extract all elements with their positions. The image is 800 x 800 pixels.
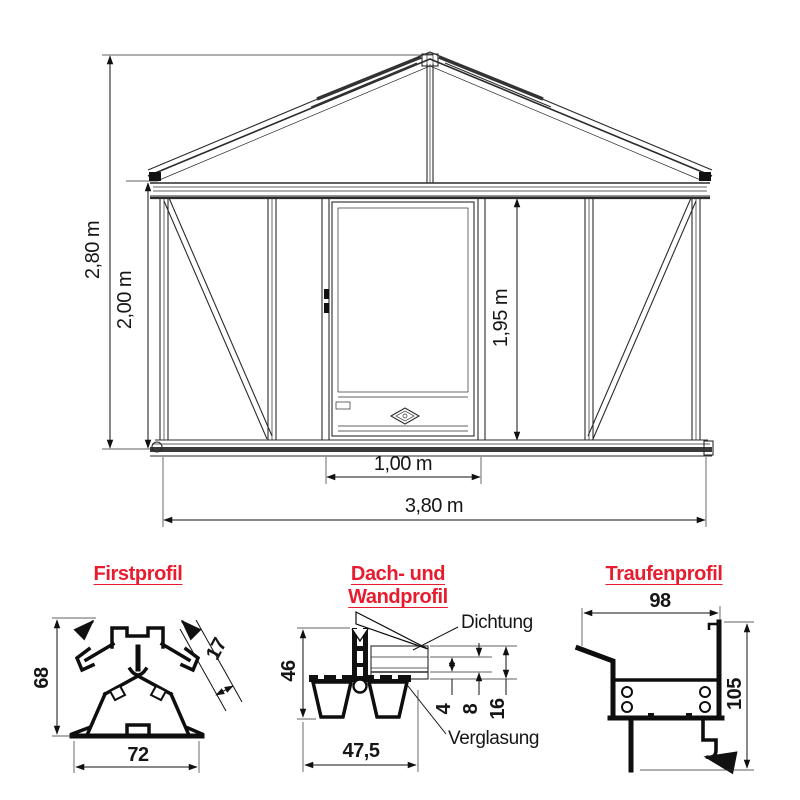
door: [324, 202, 474, 436]
dim-first-width-label: 72: [127, 744, 149, 766]
dim-door-height-label: 1,95 m: [490, 289, 512, 347]
dim-glass-label: 4: [433, 702, 455, 714]
diagonal-braces: [164, 198, 696, 439]
glazing-panel: [371, 646, 428, 679]
dim-total-width-label: 3,80 m: [405, 495, 463, 517]
glazing-callout-label: Verglasung: [448, 728, 539, 749]
greenhouse-elevation: [148, 52, 713, 456]
dim-gap-label: 8: [460, 703, 482, 714]
dim-wall-height-label: 2,00 m: [114, 271, 136, 329]
dachwand-drawing: 46 47,5 4 8 16 Dichtung Verglasung: [278, 612, 539, 772]
dim-traufen-width-label: 98: [649, 590, 671, 612]
firstprofil-title: Firstprofil: [63, 563, 213, 587]
drawing-art: 2,80 m 2,00 m 1,95 m 1,00 m 3,80 m: [0, 0, 800, 800]
dim-traufen-height-label: 105: [724, 678, 746, 710]
wall-posts: [160, 198, 700, 440]
traufen-title: Traufenprofil: [588, 563, 740, 587]
dim-dachwand-height-label: 46: [278, 660, 300, 682]
dim-dachwand-width-label: 47,5: [343, 740, 380, 762]
dim-total-label: 16: [487, 698, 509, 720]
firstprofil-drawing: 68 72 17: [31, 618, 242, 773]
dim-first-height-label: 68: [31, 667, 53, 689]
technical-drawing-page: 2,80 m 2,00 m 1,95 m 1,00 m 3,80 m: [0, 0, 800, 800]
brand-diamond-emblem: [391, 408, 419, 424]
dim-door-width-label: 1,00 m: [374, 453, 432, 475]
dim-total-height-label: 2,80 m: [82, 221, 104, 279]
traufen-drawing: 98 105: [578, 590, 754, 770]
seal-callout-label: Dichtung: [461, 612, 533, 633]
dachwand-title: Dach- und Wandprofil: [312, 563, 484, 587]
door-handle: [324, 289, 329, 299]
